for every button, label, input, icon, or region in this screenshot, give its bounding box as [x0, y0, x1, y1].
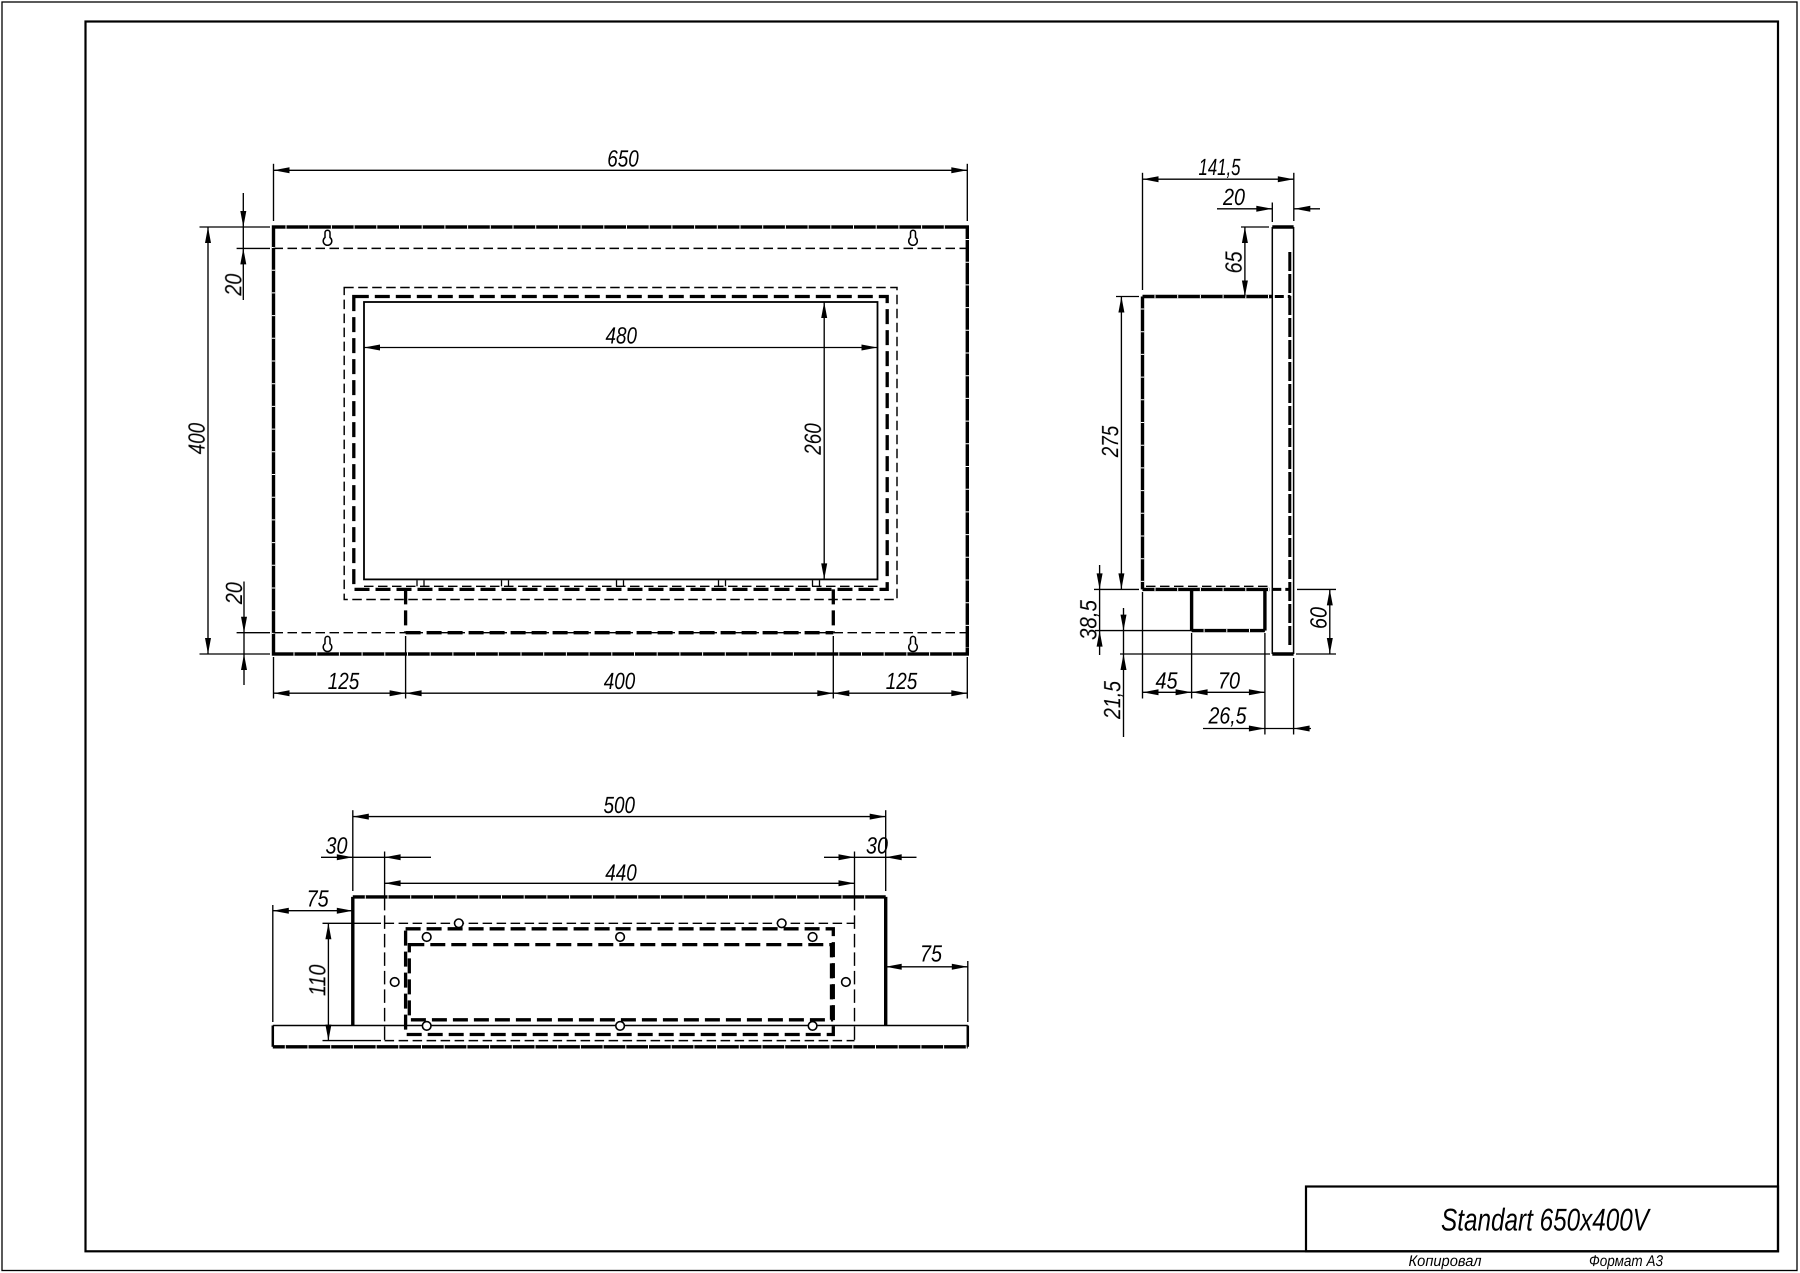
svg-text:125: 125 [328, 668, 360, 694]
svg-text:60: 60 [1306, 607, 1332, 629]
svg-text:500: 500 [604, 792, 636, 818]
svg-text:30: 30 [866, 832, 888, 858]
svg-text:110: 110 [304, 965, 330, 997]
svg-text:141,5: 141,5 [1199, 154, 1242, 180]
svg-text:20: 20 [1222, 184, 1245, 210]
svg-text:75: 75 [920, 941, 943, 967]
svg-text:45: 45 [1156, 667, 1179, 693]
svg-text:275: 275 [1097, 425, 1123, 458]
svg-text:Формат А3: Формат А3 [1589, 1253, 1663, 1270]
svg-text:Standart 650x400V: Standart 650x400V [1441, 1202, 1651, 1238]
svg-text:75: 75 [307, 886, 330, 912]
svg-text:38,5: 38,5 [1075, 599, 1101, 640]
svg-text:125: 125 [886, 668, 918, 694]
svg-text:440: 440 [605, 860, 637, 886]
svg-text:650: 650 [607, 146, 639, 172]
svg-text:400: 400 [184, 423, 210, 455]
svg-text:21,5: 21,5 [1099, 680, 1125, 720]
svg-text:30: 30 [326, 832, 348, 858]
svg-text:20: 20 [221, 582, 247, 605]
svg-text:20: 20 [220, 274, 246, 297]
svg-text:70: 70 [1218, 667, 1240, 693]
svg-text:26,5: 26,5 [1208, 703, 1248, 729]
svg-text:65: 65 [1221, 251, 1247, 274]
svg-text:480: 480 [606, 323, 638, 349]
svg-text:400: 400 [604, 668, 636, 694]
svg-text:260: 260 [800, 423, 826, 455]
svg-text:Копировал: Копировал [1409, 1253, 1482, 1270]
